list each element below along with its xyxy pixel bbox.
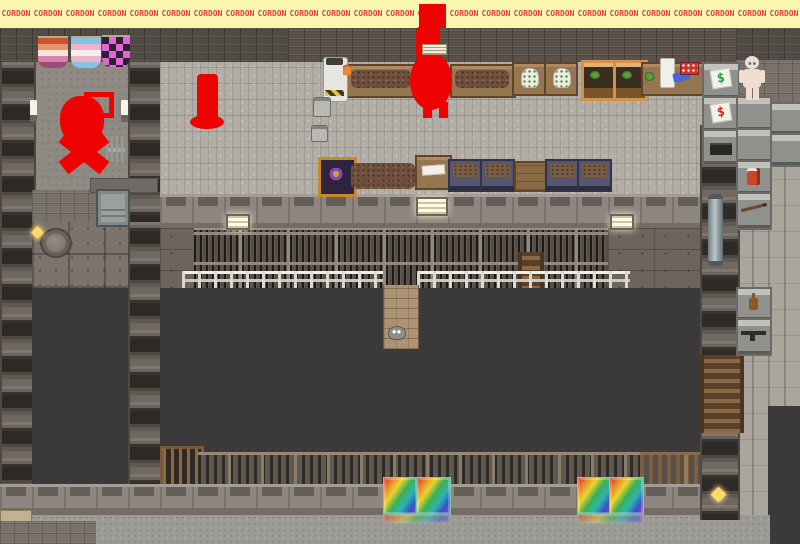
mid-wall-cells (128, 222, 164, 484)
cordon-label: CORDON (768, 0, 800, 28)
cordon-label: CORDON (288, 0, 320, 28)
trough-3[interactable] (545, 159, 580, 192)
cordon-label: CORDON (384, 0, 416, 28)
cordon-label: CORDON (672, 0, 704, 28)
red-pillar-marker (188, 72, 228, 132)
rainbow-reflection-2 (577, 513, 644, 524)
cordon-label: CORDON (192, 0, 224, 28)
metal-pipe (708, 194, 723, 266)
trough-4[interactable] (577, 159, 612, 192)
south-stairs[interactable] (700, 355, 744, 433)
redacted-player-left (56, 92, 112, 176)
wall-candle-right (121, 100, 128, 122)
red-box (680, 62, 699, 75)
counter-east-1[interactable] (770, 102, 800, 136)
cordon-label: CORDON (512, 0, 544, 28)
trough-2[interactable] (480, 159, 515, 192)
cordon-label: CORDON (608, 0, 640, 28)
lit-sign-west[interactable] (226, 214, 250, 230)
counter-2[interactable] (736, 128, 772, 164)
room-east-wall-cells (128, 62, 164, 222)
pit-southeast (768, 406, 800, 544)
southeast-pillar-cells (700, 433, 740, 520)
sack-stall-1[interactable] (512, 62, 546, 96)
counter-bottle[interactable] (736, 287, 772, 322)
metal-door[interactable] (96, 189, 130, 227)
counter-machinegun[interactable] (736, 318, 772, 356)
red-annotation-over-banner (419, 4, 446, 28)
cordon-label: CORDON (448, 0, 480, 28)
cordon-label: CORDON (352, 0, 384, 28)
rainbow-tile-1 (383, 477, 418, 515)
cordon-label: CORDON (480, 0, 512, 28)
fur-table-2[interactable] (450, 64, 516, 98)
counter-canister[interactable] (736, 160, 772, 196)
railing-west (182, 271, 383, 288)
shop-counter-red[interactable]: $ (702, 96, 740, 133)
lesbian-pride-flag[interactable] (38, 36, 68, 68)
fur-pile[interactable] (351, 163, 415, 189)
wall-candle-left (30, 100, 37, 122)
cordon-label: CORDON (32, 0, 64, 28)
cordon-label: CORDON (128, 0, 160, 28)
trough-1[interactable] (448, 159, 483, 192)
rainbow-tile-3 (577, 477, 612, 515)
herb-leaf (645, 72, 654, 81)
southwest-brick-patch (0, 521, 96, 544)
naked-player-character[interactable] (739, 55, 765, 102)
lit-sign-center[interactable] (416, 197, 448, 216)
counter-east-2[interactable] (770, 133, 800, 167)
manhole-cover[interactable] (40, 228, 72, 258)
cordon-label: CORDON (0, 0, 32, 28)
rainbow-tile-4 (609, 477, 644, 515)
cordon-label: CORDON (224, 0, 256, 28)
herb-cabinet-1[interactable] (581, 60, 616, 101)
game-viewport: $ $ CORDONCORDONCORDO (0, 0, 800, 544)
wooden-crate[interactable] (514, 161, 547, 192)
shop-counter-green[interactable]: $ (702, 62, 740, 100)
cordon-label: CORDON (704, 0, 736, 28)
cordon-label: CORDON (256, 0, 288, 28)
cordon-banner: CORDONCORDONCORDONCORDONCORDONCORDONCORD… (0, 0, 800, 28)
lit-sign-east[interactable] (610, 214, 634, 230)
sign-table[interactable] (415, 155, 452, 190)
kettle-2[interactable] (311, 125, 328, 142)
fur-table-1[interactable] (345, 64, 419, 98)
sparks (343, 63, 351, 75)
red-dollar-sign: $ (710, 102, 733, 124)
counter-rifle[interactable] (736, 192, 772, 230)
kettle-1[interactable] (313, 97, 331, 117)
trans-pride-flag[interactable] (71, 36, 101, 68)
stove-counter[interactable] (702, 129, 740, 166)
cordon-label: CORDON (64, 0, 96, 28)
cordon-label: CORDON (96, 0, 128, 28)
railing-east (417, 271, 630, 288)
green-dollar-sign: $ (710, 68, 733, 90)
pit-west (32, 288, 128, 486)
cordon-label: CORDON (576, 0, 608, 28)
cordon-label: CORDON (640, 0, 672, 28)
cordon-label: CORDON (160, 0, 192, 28)
pit-central (160, 288, 700, 454)
rainbow-reflection-1 (383, 513, 451, 524)
cordon-label: CORDON (320, 0, 352, 28)
critter[interactable] (388, 326, 406, 340)
cordon-label: CORDON (544, 0, 576, 28)
cordon-label: CORDON (736, 0, 768, 28)
west-wall-cells (0, 62, 36, 484)
sack-stall-2[interactable] (544, 62, 578, 96)
redacted-player-top (410, 26, 452, 118)
rainbow-tile-2 (416, 477, 451, 515)
pink-checker-flag[interactable] (102, 35, 130, 67)
